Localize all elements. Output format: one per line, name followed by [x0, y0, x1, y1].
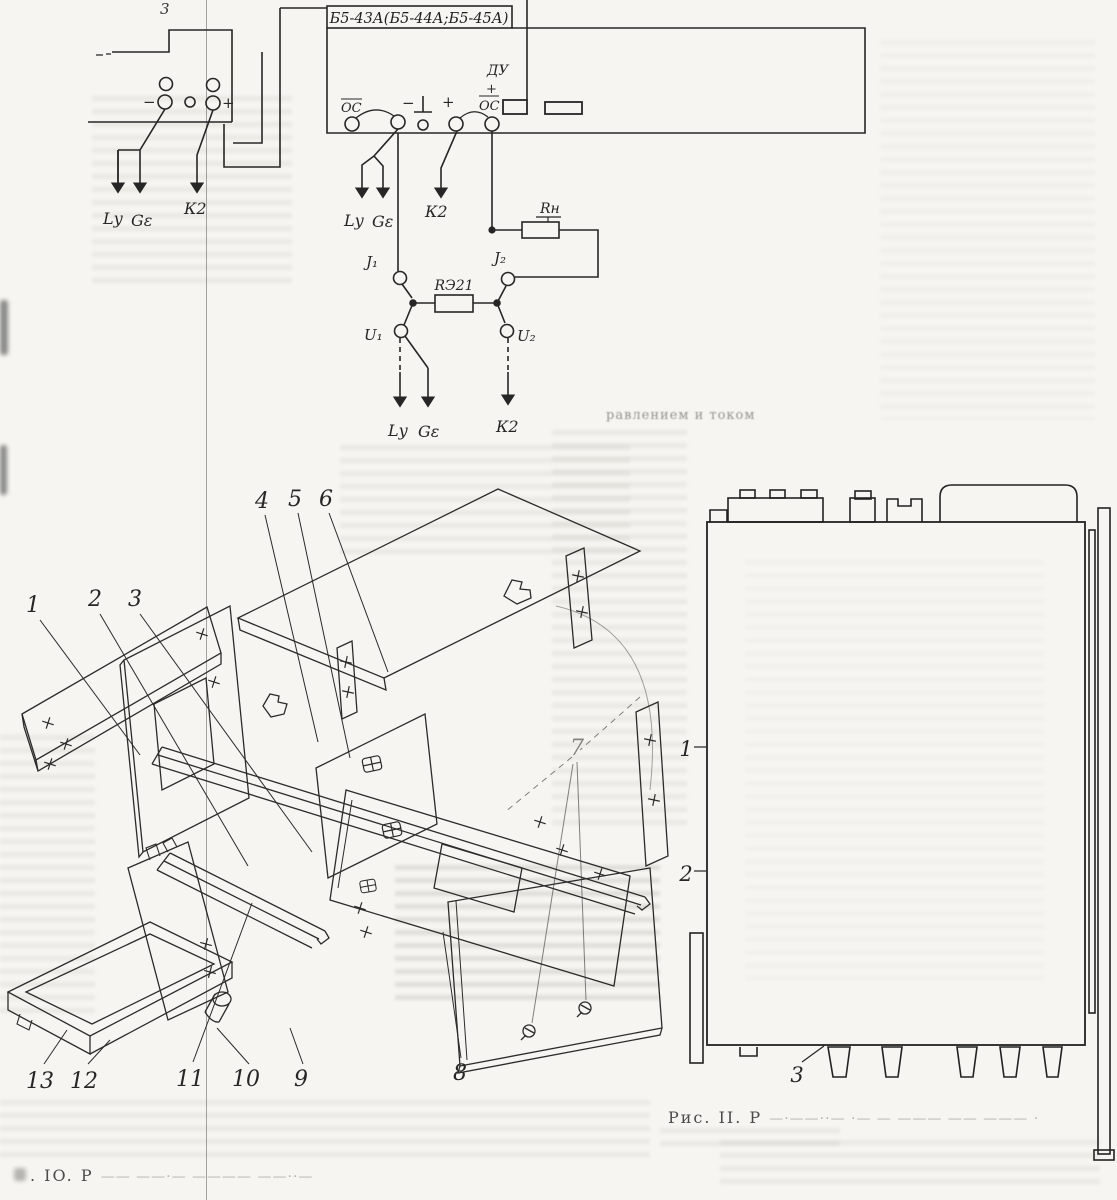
- callout-8: 8: [453, 1061, 467, 1086]
- os-right-label: ОС: [479, 99, 500, 114]
- figure-10-caption-faded-trail: —— ——·— ———— ——··—: [101, 1169, 314, 1185]
- left-arrow-ge-label: Gε: [131, 211, 152, 230]
- callout-3: 3: [128, 587, 142, 612]
- callout-2: 2: [87, 587, 102, 612]
- screw-part: [577, 1002, 591, 1017]
- clamp-part: [263, 694, 287, 717]
- main-unit-title: Б5-43А(Б5-44А;Б5-45А): [329, 11, 509, 27]
- torn-arc-mark: [556, 606, 652, 790]
- left-arrow-k2-label: К2: [183, 199, 207, 218]
- side-callout-2: 2: [678, 862, 692, 886]
- bottom-cover-panel: [448, 868, 662, 1073]
- bottom-arrow-k2-label: К2: [495, 417, 519, 436]
- window-plate-part: [120, 606, 249, 857]
- mid-arrow-k2-label: К2: [424, 202, 448, 221]
- side-rails: [690, 508, 1114, 1160]
- circuit-ju-network: J₁ J₂ RЭ21 U₁ U₂: [363, 133, 536, 345]
- left-arrow-lu-label: Lу: [102, 209, 124, 228]
- main-minus-label: −: [402, 94, 415, 112]
- figure-11-caption-faded-trail: —·——··— ·— — ——— —— ——— ·: [769, 1111, 1039, 1127]
- side-callout-1: 1: [679, 737, 692, 761]
- bottom-tray-part: [8, 922, 232, 1054]
- bottom-arrow-lu-label: Lу: [387, 421, 409, 440]
- j2-label: J₂: [491, 249, 506, 267]
- callout-leaders: [40, 513, 461, 1064]
- front-plate-part1: [22, 607, 221, 772]
- side-view-callouts: 1 2 3: [678, 737, 824, 1087]
- circuit-main-unit: Б5-43А(Б5-44А;Б5-45А) ОС − + ОС ДУ: [327, 0, 865, 133]
- bottom-feet: [740, 1047, 1062, 1077]
- exploded-view-drawing: 1 2 3 4 5 6 7 8 9 10 11 12 13: [8, 487, 668, 1094]
- side-view-drawing: 1 2 3: [678, 485, 1114, 1160]
- circuit-bottom-arrows: Lу Gε К2: [387, 336, 519, 441]
- exploded-callouts: 1 2 3 4 5 6 7 8 9 10 11 12 13: [26, 487, 584, 1094]
- clamp-part: [504, 580, 531, 604]
- figure-10-caption: . IO. Р —— ——·— ———— ——··—: [30, 1166, 313, 1185]
- callout-7: 7: [570, 736, 584, 761]
- ground-symbol: [414, 96, 432, 112]
- figure-11-caption-label: Рис. II. Р: [668, 1108, 762, 1127]
- main-plus-label: +: [442, 93, 455, 111]
- side-callout-3: 3: [790, 1063, 803, 1087]
- circuit-left-wiring: Lу Gε К2: [102, 8, 327, 230]
- mid-arrow-lu-label: Lу: [343, 211, 365, 230]
- callout-9: 9: [294, 1067, 308, 1092]
- left-unit-minus-label: −: [143, 93, 156, 111]
- rn-label: Rн: [539, 201, 560, 217]
- callout-5: 5: [288, 487, 302, 512]
- top-mounted-components: [710, 485, 1077, 522]
- callout-4: 4: [254, 489, 269, 514]
- callout-1: 1: [26, 593, 40, 618]
- j1-label: J₁: [363, 253, 378, 271]
- u2-label: U₂: [517, 327, 536, 345]
- figures-lineart: 3 − + Lу Gε К2 Б5-43А(Б5-44А;Б5-45А): [0, 0, 1117, 1200]
- circuit-diagram: 3 − + Lу Gε К2 Б5-43А(Б5-44А;Б5-45А): [88, 0, 865, 441]
- circuit-mid-wiring: Lу Gε К2: [343, 129, 457, 231]
- left-unit-partial-label: 3: [160, 0, 170, 18]
- lug-bracket-part: [316, 714, 437, 878]
- du-label: ДУ: [486, 63, 509, 79]
- callout-11: 11: [176, 1067, 204, 1092]
- u1-label: U₁: [364, 326, 383, 344]
- bottom-rail-part: [157, 838, 329, 948]
- left-unit-plus-label: +: [222, 94, 235, 112]
- du-plus-label: +: [486, 82, 497, 97]
- callout-12: 12: [70, 1069, 98, 1094]
- r21-label: RЭ21: [433, 278, 473, 294]
- bottom-arrow-ge-label: Gε: [418, 422, 439, 441]
- top-cover-panel: [238, 489, 640, 690]
- scanned-manual-page: равлением и током 3: [0, 0, 1117, 1200]
- mid-arrow-ge-label: Gε: [372, 212, 393, 231]
- flange-strip-part: [337, 548, 668, 866]
- screw-part: [521, 1025, 535, 1040]
- circuit-left-unit: 3 − +: [88, 0, 235, 122]
- figure-10-caption-label: . IO. Р: [30, 1166, 94, 1185]
- callout-13: 13: [26, 1069, 54, 1094]
- chassis-side-panel: [707, 522, 1085, 1045]
- callout-10: 10: [232, 1067, 260, 1092]
- os-left-label: ОС: [341, 101, 362, 116]
- callout-6: 6: [319, 487, 333, 512]
- figure-11-caption: Рис. II. Р —·——··— ·— — ——— —— ——— ·: [668, 1108, 1039, 1127]
